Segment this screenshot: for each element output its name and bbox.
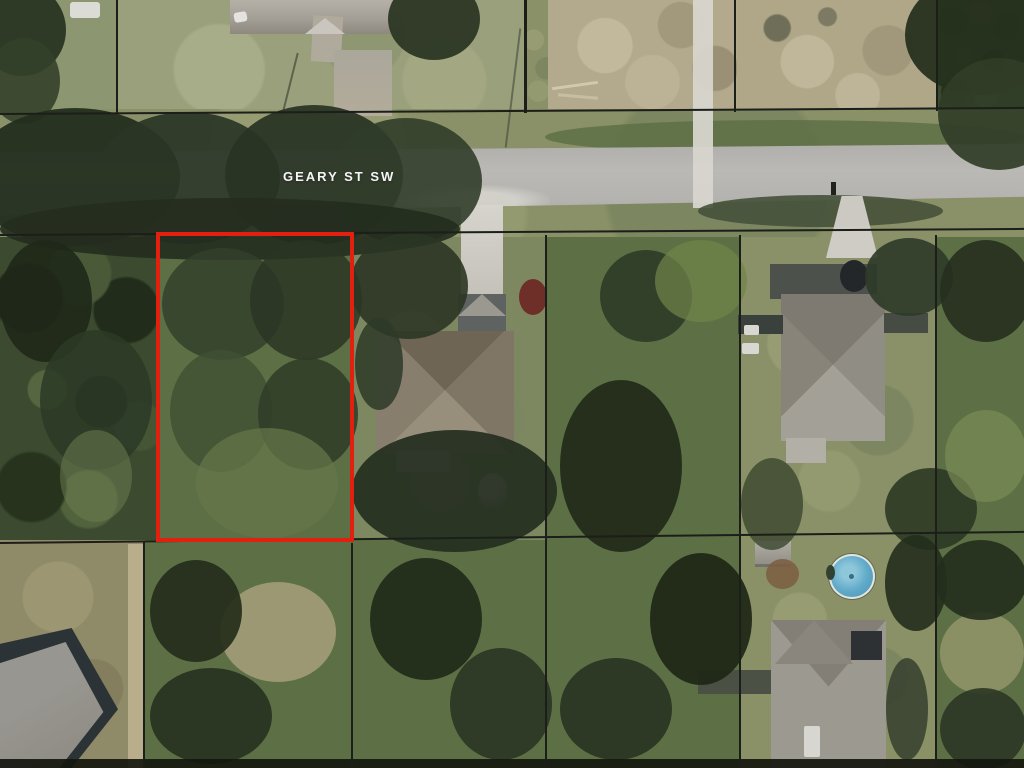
tree-canopy [352, 430, 557, 552]
tree-canopy [150, 560, 242, 662]
bottom-left-house [0, 628, 118, 768]
grass-gap [60, 430, 132, 522]
ac-unit [742, 343, 759, 354]
tree-canopy [940, 240, 1024, 342]
white-shed [70, 2, 100, 18]
street-label: GEARY ST SW [283, 169, 395, 184]
parcel-line-vertical [524, 0, 527, 113]
tree-shadow [650, 553, 752, 685]
concrete-walkway [693, 0, 713, 208]
right-house-roof [781, 294, 885, 441]
red-flowering-tree [519, 279, 547, 315]
tree-canopy [935, 540, 1024, 620]
parcel-line-vertical [351, 543, 353, 768]
dark-shed [851, 631, 882, 660]
tree-canopy [560, 658, 672, 760]
tree-canopy [886, 658, 928, 760]
tree-shadow [560, 380, 682, 552]
right-house-right-wing [884, 313, 928, 333]
mailbox [831, 182, 836, 195]
grass-gap [940, 612, 1024, 694]
roadside-hedge [698, 195, 943, 227]
ac-unit [744, 325, 759, 335]
parcel-line-vertical [935, 235, 937, 768]
grass-gap [945, 410, 1024, 502]
tree-canopy [940, 688, 1024, 768]
parcel-line-vertical [545, 235, 547, 768]
tree-canopy [150, 668, 272, 764]
sand-strip [128, 544, 144, 768]
pool-center-drain [849, 574, 854, 579]
parcel-line-vertical [143, 541, 145, 768]
parcel-line-vertical [936, 0, 938, 111]
top-driveway [334, 50, 392, 116]
parcel-line-horizontal [0, 759, 1024, 768]
parcel-line-vertical [739, 235, 741, 768]
parcel-line-vertical [116, 0, 118, 114]
tree-canopy [370, 558, 482, 680]
tree-canopy [355, 318, 403, 410]
tree-canopy [865, 238, 953, 316]
tree-canopy [741, 458, 803, 550]
rooftop-tree-shadow [840, 260, 868, 292]
pool-ladder-shadow [826, 565, 835, 580]
parcel-line-vertical [734, 0, 736, 112]
highlighted-parcel-outline [156, 232, 354, 542]
right-patio [786, 438, 826, 463]
tree-canopy-light [655, 240, 747, 322]
white-chimney [804, 726, 820, 757]
mulch-patch [766, 559, 799, 589]
aerial-parcel-map: GEARY ST SW [0, 0, 1024, 768]
tree-canopy [450, 648, 552, 760]
